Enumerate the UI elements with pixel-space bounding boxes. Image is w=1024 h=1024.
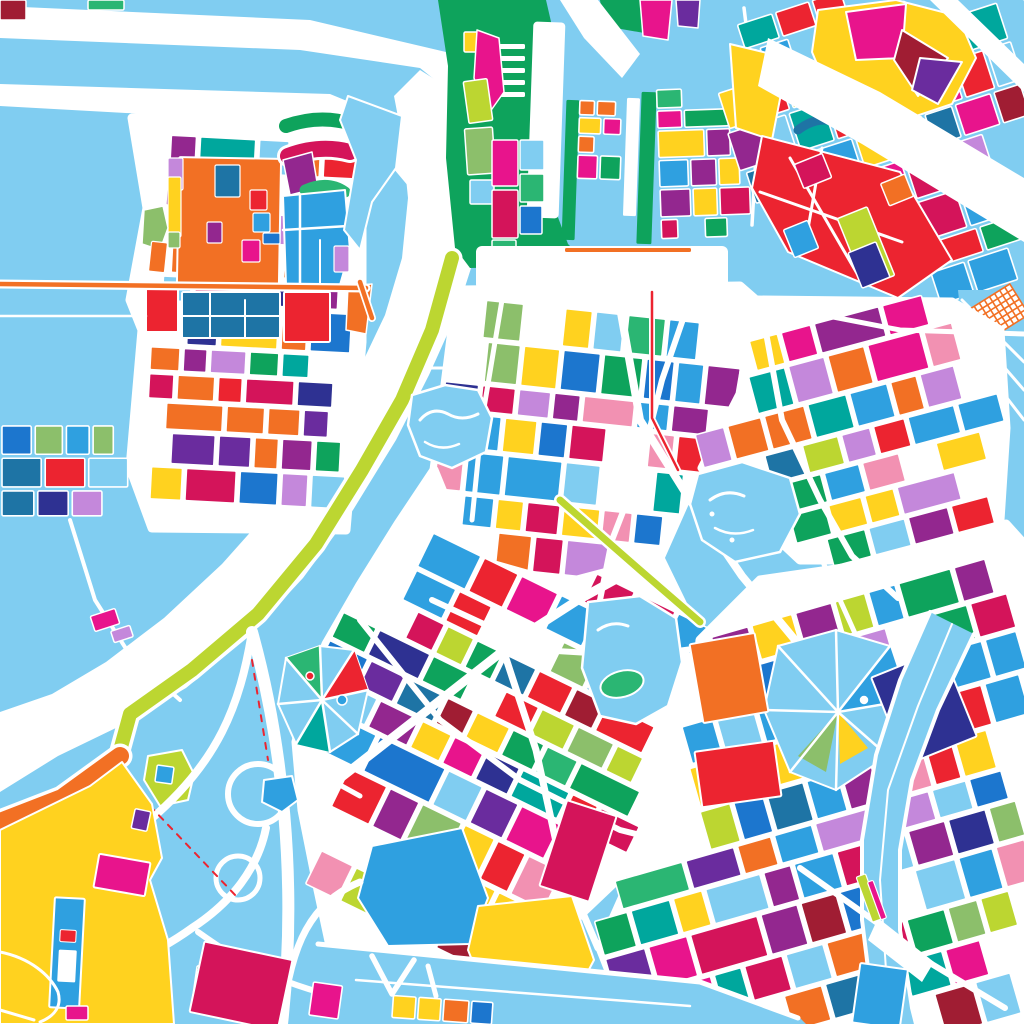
pond-dot — [710, 512, 715, 517]
city-block — [418, 997, 442, 1021]
city-block — [66, 426, 89, 454]
city-block — [579, 118, 601, 134]
corner-kelly — [88, 0, 124, 10]
city-block — [562, 309, 593, 349]
inset-azure — [253, 213, 270, 232]
city-block — [657, 89, 682, 108]
city-block — [684, 109, 728, 128]
city-block — [579, 100, 594, 115]
city-block — [693, 188, 718, 216]
port-top-violet — [676, 0, 700, 28]
park-dot-azure — [337, 695, 347, 705]
city-block — [72, 491, 102, 516]
city-block — [297, 381, 333, 407]
city-block — [659, 160, 688, 187]
city-block — [603, 119, 620, 135]
pond-dot — [730, 538, 735, 543]
city-block — [171, 433, 216, 466]
park-dot-red — [306, 672, 314, 680]
inset-dteal — [215, 165, 240, 197]
inset-purple — [207, 222, 222, 243]
park-magenta-bit — [66, 1006, 88, 1020]
city-block — [93, 426, 113, 454]
city-block — [781, 325, 818, 362]
park-pond-old — [408, 385, 492, 468]
city-block — [249, 352, 279, 376]
inset-magenta — [242, 240, 260, 262]
city-block — [658, 130, 705, 158]
city-block — [315, 441, 341, 473]
port-block-sky2 — [520, 140, 544, 170]
city-block — [245, 379, 294, 406]
city-block — [525, 502, 560, 535]
city-block — [45, 458, 85, 487]
big-block-red — [694, 741, 781, 808]
inset-red — [250, 190, 267, 210]
city-block — [517, 389, 551, 418]
city-block — [210, 350, 246, 375]
city-block — [671, 406, 709, 435]
left-arc-crimson — [288, 149, 350, 156]
city-block — [267, 408, 300, 436]
city-block — [577, 155, 597, 179]
park-dot-white — [859, 695, 869, 705]
city-park-pond — [582, 596, 682, 724]
city-block — [443, 999, 469, 1023]
city-block — [582, 396, 635, 427]
port-top-magenta — [640, 0, 672, 40]
city-block — [177, 375, 215, 401]
port-block-blue — [520, 206, 542, 234]
city-block — [597, 101, 616, 116]
port-block-sage — [464, 127, 495, 175]
city-block — [504, 456, 562, 501]
park-red-bit — [60, 930, 77, 943]
left-red-block — [146, 288, 178, 332]
city-block — [720, 187, 751, 215]
city-block — [707, 129, 731, 156]
city-block — [691, 159, 717, 186]
city-block — [35, 426, 62, 454]
inset-lilac2 — [334, 246, 349, 272]
city-block — [660, 189, 691, 217]
city-block — [2, 426, 31, 454]
inset-sage — [168, 232, 180, 248]
city-block — [600, 156, 621, 180]
left-gold-block — [148, 241, 167, 273]
city-block — [2, 491, 34, 516]
port-block-magenta — [492, 140, 518, 186]
city-block — [282, 354, 310, 378]
big-block-orange — [690, 633, 769, 723]
city-block — [218, 377, 243, 403]
city-block — [239, 471, 279, 505]
city-block — [532, 537, 563, 575]
pier-stripe — [497, 44, 525, 49]
city-block — [148, 374, 174, 400]
quay-orange-line — [565, 248, 691, 252]
city-block — [538, 422, 568, 458]
city-block — [254, 438, 279, 470]
left-red-block2 — [284, 292, 330, 342]
city-block — [165, 403, 223, 432]
city-map-canvas — [0, 0, 1024, 1024]
city-block — [502, 418, 537, 455]
big-block-azure — [358, 828, 488, 946]
city-block — [520, 346, 560, 389]
inset-blue — [263, 233, 280, 244]
city-block — [2, 458, 41, 487]
city-block — [657, 110, 682, 128]
city-block — [552, 393, 580, 421]
city-block — [150, 347, 180, 371]
port-block-crimson — [492, 190, 518, 238]
corner-azure-block — [852, 963, 908, 1024]
city-block — [150, 467, 183, 501]
city-block — [218, 436, 251, 468]
city-block — [185, 468, 236, 503]
corner-maroon — [0, 0, 26, 20]
city-block — [281, 439, 312, 471]
city-block — [560, 350, 601, 393]
port-block-kelly — [520, 174, 544, 202]
city-block — [226, 406, 265, 434]
city-block — [568, 425, 606, 462]
city-block — [470, 1001, 492, 1024]
city-block — [309, 982, 343, 1019]
city-block — [674, 362, 704, 404]
lime-blob-azure — [155, 765, 174, 784]
city-block — [705, 218, 727, 237]
city-block — [578, 136, 594, 152]
city-block — [462, 496, 494, 528]
park-white-notch — [57, 950, 77, 983]
city-block — [495, 499, 524, 531]
city-block — [303, 410, 329, 437]
city-block — [89, 458, 128, 487]
port-block-sky — [470, 180, 494, 204]
screenshot-root — [0, 0, 1024, 1024]
city-block — [183, 348, 207, 372]
city-block — [633, 514, 663, 546]
city-block — [281, 473, 308, 507]
city-block — [38, 491, 68, 516]
park-violet-bit — [131, 809, 151, 832]
city-block — [661, 219, 678, 238]
inset-yellow — [168, 177, 181, 237]
port-block-lime — [463, 79, 493, 124]
city-block — [392, 996, 416, 1020]
